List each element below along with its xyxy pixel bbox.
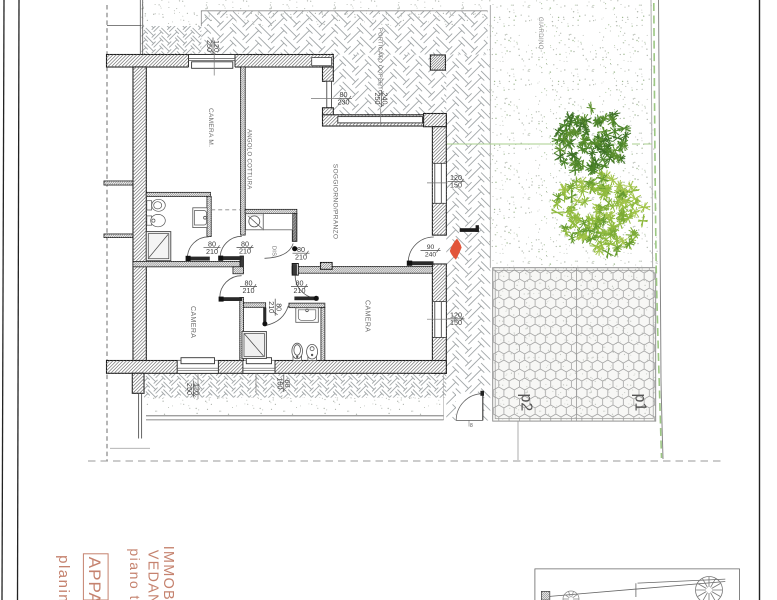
svg-text:DIS.: DIS. (271, 246, 277, 258)
svg-text:210: 210 (206, 247, 218, 256)
svg-text:IMMOBILIARE: IMMOBILIARE (160, 546, 176, 600)
svg-text:VEDANO: VEDANO (145, 550, 161, 600)
svg-text:planimetria: planimetria (55, 555, 72, 600)
svg-text:GIARDINO: GIARDINO (537, 17, 543, 50)
svg-text:CAMERA: CAMERA (364, 300, 371, 332)
svg-text:250: 250 (185, 383, 194, 395)
svg-text:p1: p1 (632, 394, 649, 412)
svg-text:CAMERA M.: CAMERA M. (207, 108, 214, 147)
svg-text:210: 210 (294, 286, 306, 295)
svg-text:240: 240 (425, 252, 437, 259)
svg-text:p2: p2 (518, 394, 535, 412)
svg-text:150: 150 (276, 378, 285, 390)
svg-text:210: 210 (243, 286, 255, 295)
svg-text:8: 8 (470, 423, 473, 429)
svg-text:SOGGIORNO/PRANZO: SOGGIORNO/PRANZO (332, 164, 339, 240)
svg-text:90: 90 (427, 244, 435, 251)
svg-text:150: 150 (450, 318, 462, 327)
svg-text:210: 210 (239, 247, 251, 256)
svg-text:piano terra: piano terra (127, 548, 143, 600)
svg-text:CAMERA: CAMERA (189, 306, 196, 338)
svg-text:250: 250 (205, 40, 214, 52)
svg-text:PORTICATO COPERTO: PORTICATO COPERTO (377, 28, 383, 95)
svg-text:210: 210 (295, 252, 307, 261)
svg-text:APPARTAMENTO 1: APPARTAMENTO 1 (85, 557, 104, 600)
svg-text:ANGOLO COTTURA: ANGOLO COTTURA (246, 129, 252, 190)
svg-text:210: 210 (267, 301, 276, 313)
svg-text:230: 230 (338, 98, 350, 107)
svg-text:150: 150 (450, 181, 462, 190)
